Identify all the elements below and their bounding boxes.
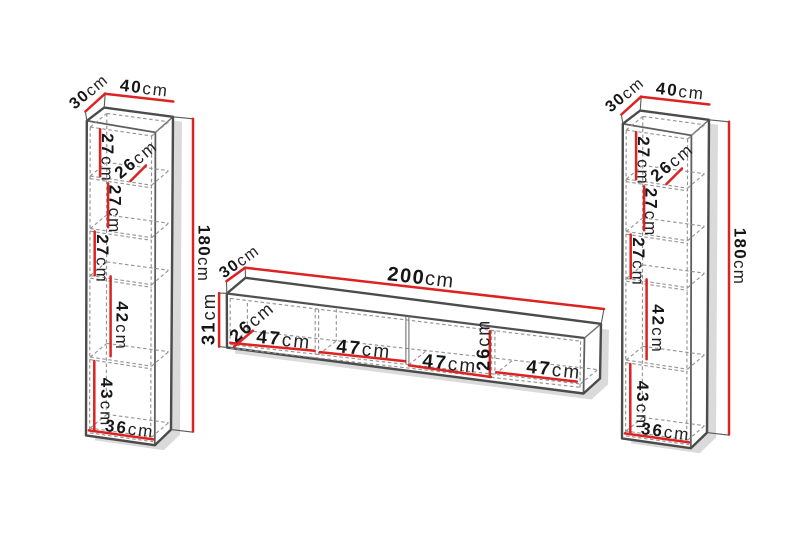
svg-text:27cm: 27cm bbox=[634, 136, 653, 186]
svg-text:180cm: 180cm bbox=[195, 225, 214, 283]
svg-text:42cm: 42cm bbox=[648, 304, 667, 354]
svg-text:27cm: 27cm bbox=[106, 185, 125, 235]
svg-text:27cm: 27cm bbox=[98, 133, 117, 183]
svg-text:180cm: 180cm bbox=[731, 228, 750, 286]
svg-text:27cm: 27cm bbox=[642, 188, 661, 238]
svg-text:31cm: 31cm bbox=[197, 292, 218, 345]
svg-text:27cm: 27cm bbox=[629, 237, 648, 287]
svg-text:42cm: 42cm bbox=[112, 301, 131, 351]
svg-text:27cm: 27cm bbox=[93, 234, 112, 284]
